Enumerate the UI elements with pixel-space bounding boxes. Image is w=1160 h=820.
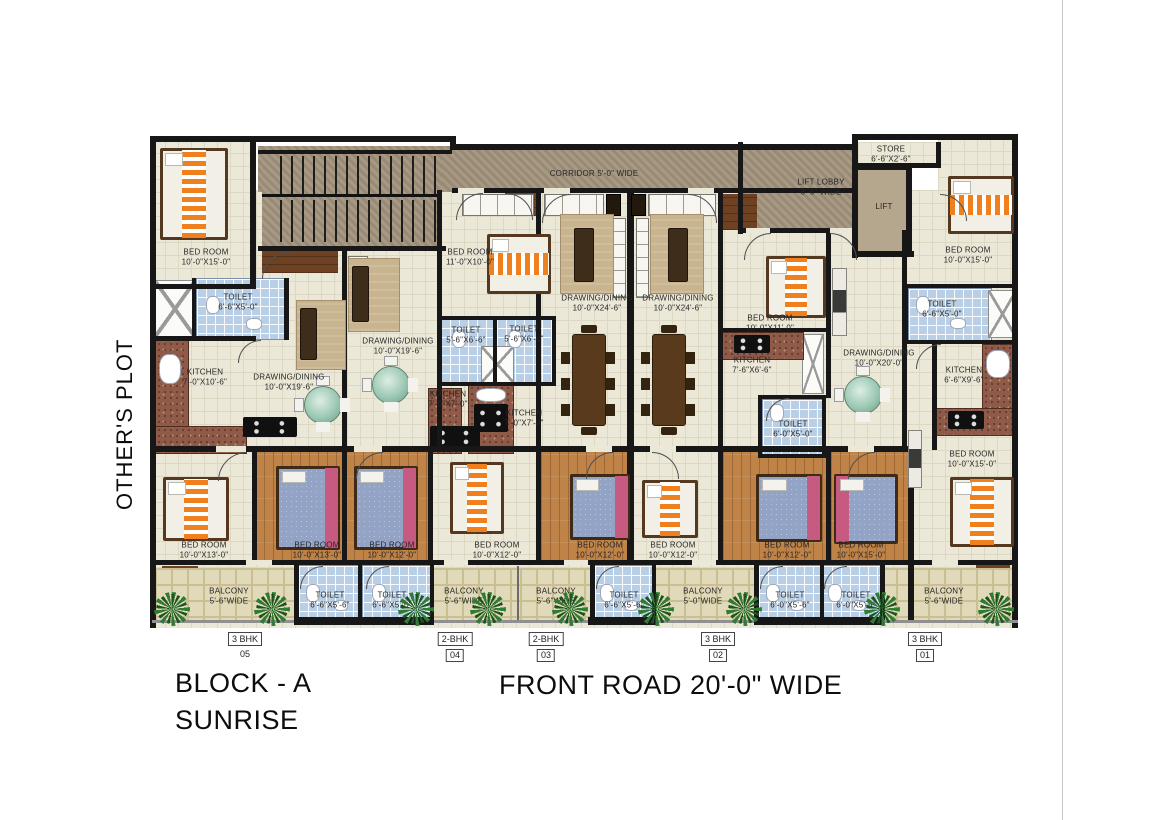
plant-icon [398, 592, 434, 626]
wall [826, 448, 831, 565]
unit-badge-02: 3 BHK 02 [701, 632, 735, 662]
room-label: BED ROOM10'-0"X15'-0" [948, 450, 997, 471]
floor-plan-sheet: BED ROOM10'-0"X15'-0" TOILET6'-6"X5'-0" … [0, 0, 1160, 820]
plant-icon [726, 592, 762, 626]
unit-type: 3 BHK [701, 632, 735, 646]
unit-number: 04 [446, 649, 464, 662]
room-label: KITCHEN7'-0"X7'-0" [428, 390, 467, 411]
room-label: BALCONY5'-6"WIDE [924, 587, 964, 608]
sofa-unit04 [352, 266, 369, 322]
others-plot-label: OTHER'S PLOT [112, 300, 138, 510]
wall [284, 278, 289, 340]
wall [852, 140, 858, 258]
wall [590, 565, 595, 620]
room-label: KITCHEN7'-6"X6'-6" [732, 356, 771, 377]
room-label: DRAWING/DINING10'-0"X19'-6" [362, 337, 433, 358]
room-label: BED ROOM10'-0"X15'-0" [837, 541, 886, 562]
wall [718, 190, 723, 565]
stove-kitchen02 [734, 335, 770, 353]
tv-unit02 [832, 268, 847, 336]
wall [820, 565, 824, 620]
unit-number: 02 [709, 649, 727, 662]
sink-kitchen01 [986, 350, 1010, 378]
dining-table-left [572, 334, 606, 426]
room-label: STORE6'-6"X2'-6" [871, 145, 910, 166]
door-gap [246, 560, 272, 565]
wall [152, 446, 922, 452]
plant-icon [638, 592, 674, 626]
plant-icon [154, 592, 190, 626]
plant-icon [978, 592, 1014, 626]
door-gap [444, 560, 468, 565]
sink-kitchen05 [159, 354, 181, 384]
round-table-unit02 [844, 376, 882, 414]
wall [904, 284, 908, 344]
shelf-col-center-left [613, 218, 626, 298]
unit-number: 03 [537, 649, 555, 662]
room-label: TOILET6'-0"X5'-0" [773, 420, 812, 441]
others-plot-text: OTHER'S PLOT [112, 339, 137, 510]
unit-badge-04: 2-BHK 04 [438, 632, 473, 662]
room-label: BED ROOM10'-0"X12'-0" [649, 541, 698, 562]
room-label: BED ROOM10'-0"X11'-0" [746, 314, 794, 335]
room-label: BED ROOM10'-0"X12'-0" [473, 541, 522, 562]
wall [437, 382, 556, 386]
room-label: BALCONY5'-6"WIDE [209, 587, 249, 608]
stove-kitchen03 [474, 404, 508, 432]
room-label: BED ROOM10'-0"X15'-0" [944, 246, 993, 267]
door-gap [586, 446, 612, 452]
dining-chairs-left-b [606, 342, 615, 416]
block-line2: SUNRISE [175, 705, 312, 736]
plant-icon [552, 592, 588, 626]
wall [904, 340, 1016, 344]
room-label: DRAWING/DINING10'-0"X24'-6" [561, 294, 632, 315]
room-label: BED ROOM10'-0"X12'-0" [763, 541, 812, 562]
wall [450, 144, 858, 150]
room-label: TOILET6'-6"X5'-0" [922, 300, 961, 321]
door-gap [932, 560, 958, 565]
room-label: BED ROOM10'-0"X12'-0" [368, 541, 417, 562]
room-label: KITCHEN6'-6"X9'-6" [944, 366, 983, 387]
wall [358, 565, 362, 620]
unit-type: 2-BHK [438, 632, 473, 646]
wall [904, 284, 1016, 288]
room-label: BED ROOM10'-0"X13'-0" [180, 541, 229, 562]
stair-center-rail [262, 194, 442, 197]
door-gap [848, 446, 874, 452]
wall [852, 251, 914, 257]
room-label: CORRIDOR 5'-0" WIDE [550, 169, 639, 179]
wall [437, 190, 442, 452]
dining-chairs-left-a [561, 342, 570, 416]
wall [758, 454, 826, 458]
wall [517, 566, 519, 620]
wall [342, 248, 347, 565]
wall [758, 395, 826, 399]
sheet-border-line [1062, 0, 1063, 820]
vent-shaft-3 [802, 334, 824, 394]
basin-toilet05 [246, 318, 262, 330]
room-label: TOILET6'-6"X5'-0" [218, 293, 257, 314]
plant-icon [254, 592, 290, 626]
wall [493, 318, 497, 384]
door-gap [216, 446, 246, 452]
unit-badge-03: 2-BHK 03 [529, 632, 564, 662]
wall [150, 136, 456, 142]
wall [152, 284, 256, 289]
room-label: BED ROOM10'-0"X13'-0" [293, 541, 342, 562]
bed-bottom-7 [756, 474, 822, 542]
wall [152, 336, 256, 341]
vent-shaft-2 [481, 346, 514, 383]
room-label: BED ROOM10'-0"X15'-0" [182, 248, 231, 269]
sofa-center-right [668, 228, 688, 282]
unit-badge-05: 3 BHK 05 [228, 632, 262, 660]
wardrobe-center-right [631, 194, 646, 216]
sink-kitchen03 [476, 388, 506, 402]
bed-unit05-top [160, 148, 228, 240]
dining-chairs-right-a [641, 342, 650, 416]
dining-chairs-right-b [686, 342, 695, 416]
unit-number: 05 [237, 649, 253, 660]
stove-kitchen01 [948, 411, 984, 429]
bed-unit01-mid [950, 477, 1014, 547]
tv-unit01 [908, 430, 922, 488]
unit-type: 3 BHK [228, 632, 262, 646]
door-gap [354, 446, 382, 452]
plant-icon [470, 592, 506, 626]
room-label: LIFT [875, 202, 892, 212]
bed-unit04 [487, 234, 551, 294]
wall [252, 448, 257, 565]
unit-number: 01 [916, 649, 934, 662]
room-label: TOILET5'-6"X6'-6" [504, 325, 543, 346]
bed-bottom-1 [163, 477, 229, 541]
bed-bottom-2 [276, 466, 340, 550]
shelf-col-center-right [636, 218, 649, 298]
wall [852, 134, 1018, 140]
unit-type: 3 BHK [908, 632, 942, 646]
room-label: DRAWING/DINING10'-0"X19'-6" [253, 373, 324, 394]
front-road-label: FRONT ROAD 20'-0" WIDE [499, 670, 842, 701]
room-label: LIFT LOBBY8'-6" WIDE [797, 178, 844, 199]
wall [150, 136, 156, 628]
block-title: BLOCK - A SUNRISE [175, 668, 312, 736]
bed-bottom-8 [834, 474, 898, 544]
wall [552, 318, 556, 384]
wall [250, 138, 256, 288]
wardrobe-center-left [606, 194, 621, 216]
room-label: BED ROOM10'-0"X12'-0" [576, 541, 625, 562]
stair-treads-lower [280, 200, 440, 242]
room-label: TOILET6'-0"X5'-6" [770, 591, 809, 612]
dining-table-right [652, 334, 686, 426]
block-line1: BLOCK - A [175, 668, 312, 699]
stair-treads-upper [280, 156, 440, 194]
room-label: TOILET5'-6"X6'-6" [446, 326, 485, 347]
room-label: DRAWING/DINING10'-0"X24'-6" [642, 294, 713, 315]
bed-bottom-4 [450, 462, 504, 534]
room-label: BALCONY5'-0"WIDE [683, 587, 723, 608]
plant-icon [864, 592, 900, 626]
wall [428, 448, 433, 565]
sofa-unit05 [300, 308, 317, 360]
wall [258, 246, 446, 251]
bed-bottom-5 [570, 474, 630, 540]
unit-badge-01: 3 BHK 01 [908, 632, 942, 662]
sofa-center-left [574, 228, 594, 282]
bed-bottom-6 [642, 480, 698, 538]
wall [258, 150, 452, 154]
room-label: KITCHEN7'-0"X7'-0" [504, 409, 543, 430]
room-label: DRAWING/DINING10'-0"X20'-0" [843, 349, 914, 370]
room-label: TOILET6'-6"X5'-6" [310, 591, 349, 612]
bed-unit02 [766, 256, 826, 318]
room-label: BED ROOM11'-0"X10'-0" [446, 248, 494, 269]
wall [450, 136, 456, 150]
wall [294, 565, 299, 620]
stove-kitchen05 [243, 417, 297, 437]
room-label: KITCHEN7'-0"X10'-6" [183, 368, 227, 389]
round-table-unit04 [372, 366, 410, 404]
unit-type: 2-BHK [529, 632, 564, 646]
wall [437, 316, 556, 320]
